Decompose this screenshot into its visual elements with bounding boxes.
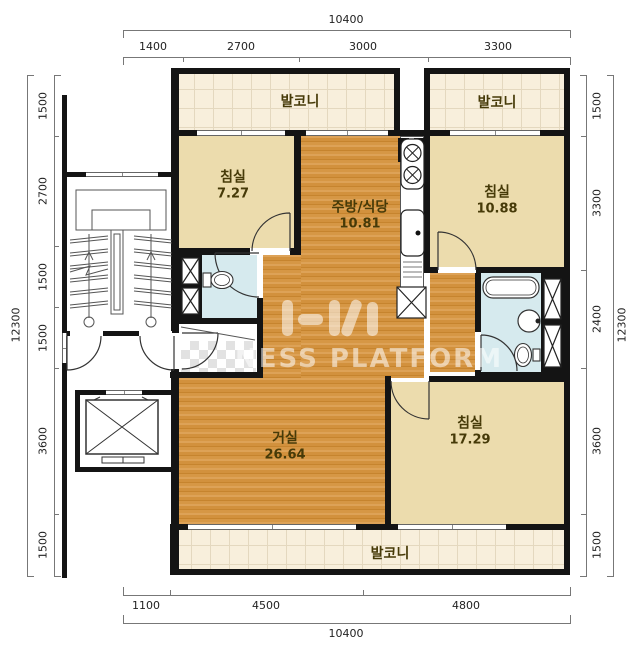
dim-label: 2700 — [37, 177, 50, 205]
window — [306, 130, 388, 136]
dim-label: 3300 — [591, 189, 604, 217]
dim-tick — [581, 368, 586, 369]
window — [450, 130, 540, 136]
entry-shoe-area — [179, 324, 257, 341]
bedroom-bottom-right-label: 침실 17.29 — [449, 414, 490, 449]
dim-label: 12300 — [10, 308, 23, 343]
dim-tick — [54, 514, 59, 515]
column — [398, 138, 409, 162]
watermark-text: NESS PLATFORM — [235, 344, 435, 374]
dim-line-right-segments — [580, 75, 587, 577]
dim-label: 1500 — [37, 263, 50, 291]
wall — [179, 318, 263, 324]
window — [86, 172, 158, 177]
dim-label: 1500 — [37, 531, 50, 559]
wall — [424, 136, 430, 273]
dim-line-bottom-segments — [123, 587, 571, 596]
dim-tick — [428, 57, 429, 62]
dim-label: 1500 — [591, 531, 604, 559]
dim-tick — [581, 270, 586, 271]
door-opening — [70, 331, 103, 336]
watermark-logo-icon — [329, 300, 340, 336]
window — [197, 130, 285, 136]
wall — [564, 68, 570, 575]
window — [188, 524, 356, 530]
dim-label: 3600 — [37, 427, 50, 455]
dim-label: 1500 — [37, 92, 50, 120]
dim-line-top-segments — [123, 57, 571, 65]
wall — [179, 68, 400, 74]
dim-label: 3600 — [591, 427, 604, 455]
wall — [75, 467, 172, 472]
dim-tick — [54, 246, 59, 247]
balcony-bottom-label: 발코니 — [371, 545, 410, 563]
watermark-logo-icon — [367, 302, 378, 336]
dim-tick — [54, 368, 59, 369]
dim-label: 3000 — [349, 40, 377, 53]
dim-label: 1100 — [132, 599, 160, 612]
dim-label: 3300 — [484, 40, 512, 53]
wall — [294, 136, 301, 255]
dim-tick — [54, 307, 59, 308]
watermark-logo-icon — [298, 314, 323, 325]
dim-label: 2700 — [227, 40, 255, 53]
dim-tick — [581, 136, 586, 137]
dim-label: 1500 — [37, 324, 50, 352]
door-opening — [139, 331, 172, 336]
wall — [424, 267, 438, 273]
balcony-top-left-label: 발코니 — [281, 93, 320, 111]
dim-label: 1400 — [139, 40, 167, 53]
kitchen-dining-label: 주방/식당 10.81 — [332, 198, 389, 233]
elevator-door — [106, 390, 142, 395]
bedroom-bottom-right-floor — [391, 382, 564, 524]
wall — [394, 68, 400, 136]
living-room-label: 거실 26.64 — [264, 429, 305, 464]
wall — [385, 376, 391, 524]
elevator-icon — [86, 397, 158, 463]
wall — [170, 524, 176, 575]
dim-label: 1500 — [591, 92, 604, 120]
dim-tick — [183, 57, 184, 62]
window — [62, 333, 67, 363]
bedroom-top-right-label: 침실 10.88 — [476, 183, 517, 218]
wall — [424, 68, 570, 74]
small-bathroom-floor — [202, 255, 257, 318]
dim-line-left-total — [27, 75, 34, 577]
watermark-logo-icon — [282, 300, 293, 336]
shaft-block — [541, 273, 564, 372]
wall — [424, 68, 430, 136]
dim-label: 12300 — [616, 308, 629, 343]
dim-line-right-total — [607, 75, 614, 577]
dim-line-bottom-total — [123, 615, 571, 624]
door-opening — [171, 333, 179, 369]
door-opening — [257, 252, 263, 298]
dim-label: 10400 — [329, 627, 364, 640]
dim-label: 10400 — [329, 13, 364, 26]
wall — [429, 376, 570, 382]
dim-tick — [581, 514, 586, 515]
dim-tick — [54, 136, 59, 137]
shaft-block — [179, 255, 202, 318]
balcony-top-right-label: 발코니 — [478, 94, 517, 112]
wall — [170, 569, 570, 575]
wall — [75, 390, 80, 472]
dim-label: 4800 — [452, 599, 480, 612]
floor-plan: 10400 1400 2700 3000 3300 1100 4500 4800… — [0, 0, 640, 655]
dim-tick — [170, 590, 171, 595]
dim-line-top-total — [123, 30, 571, 38]
dim-line-left-segments — [54, 75, 61, 577]
staircase-icon — [70, 190, 172, 327]
bedroom-top-left-label: 침실 7.27 — [217, 168, 249, 203]
dim-tick — [299, 57, 300, 62]
dim-tick — [363, 590, 364, 595]
dim-label: 2400 — [591, 305, 604, 333]
wall — [171, 68, 179, 575]
window — [398, 524, 506, 530]
dim-label: 4500 — [252, 599, 280, 612]
door-opening — [250, 248, 290, 255]
